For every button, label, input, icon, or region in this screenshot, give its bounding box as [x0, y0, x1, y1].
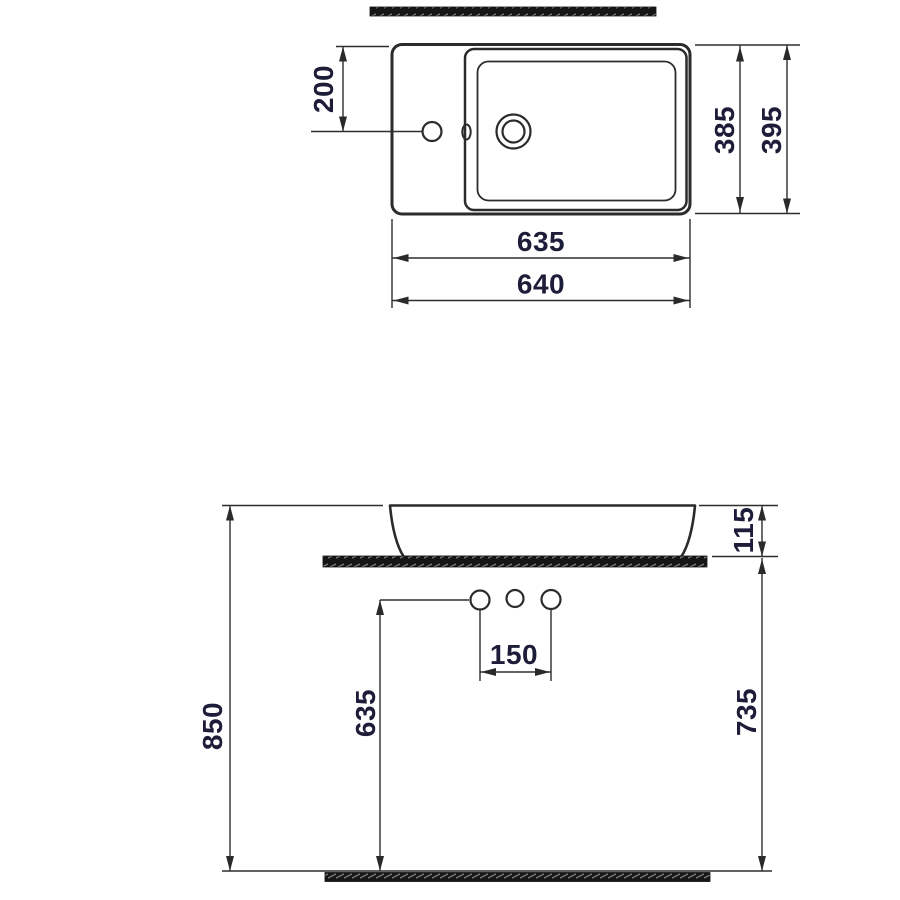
arrow-down-icon	[339, 117, 347, 132]
faucet-holes	[471, 590, 561, 610]
basin-outer-rect	[392, 45, 690, 215]
dim-depths: 385 395	[695, 45, 800, 214]
drawing-sheet: 200 385 395 635 640	[0, 0, 900, 900]
bowl-inner-rect	[478, 62, 676, 201]
arrow-right-icon	[674, 297, 689, 305]
hole-left	[471, 591, 490, 610]
floor-hatch-bar	[325, 873, 710, 882]
arrow-up-icon	[758, 506, 766, 521]
dim-widths: 635 640	[392, 219, 690, 308]
overflow-notch	[462, 125, 470, 140]
arrow-down-icon	[736, 197, 744, 212]
arrow-down-icon	[758, 542, 766, 557]
dim-label-150: 150	[490, 639, 538, 670]
dim-label-735: 735	[731, 688, 762, 736]
dim-basin-height: 115	[728, 506, 766, 557]
dim-label-395: 395	[756, 106, 787, 154]
arrow-up-icon	[339, 47, 347, 62]
dim-counter-height: 735	[731, 558, 766, 871]
faucet-hole	[423, 122, 442, 141]
dim-faucet-offset: 200	[308, 47, 422, 132]
arrow-left-icon	[394, 297, 409, 305]
hole-middle	[507, 590, 524, 607]
arrow-left-icon	[394, 254, 409, 262]
dim-label-115: 115	[728, 507, 759, 554]
plan-view: 200 385 395 635 640	[308, 7, 800, 308]
dim-label-200: 200	[308, 65, 339, 113]
arrow-down-icon	[376, 856, 384, 871]
arrow-right-icon	[674, 254, 689, 262]
dim-hole-spacing: 150	[480, 610, 551, 681]
counter-hatch-bar	[323, 556, 707, 567]
arrow-up-icon	[226, 506, 234, 521]
front-view: 850 635 735 115	[197, 506, 778, 882]
dim-label-640: 640	[517, 269, 565, 300]
dim-label-850: 850	[197, 702, 228, 750]
dim-hole-height: 635	[350, 600, 469, 871]
dim-label-385: 385	[709, 106, 740, 154]
dim-label-635-plan: 635	[517, 226, 565, 257]
arrow-down-icon	[783, 199, 791, 214]
basin-plan-outline	[392, 45, 690, 215]
arrow-up-icon	[783, 45, 791, 60]
arrow-down-icon	[226, 856, 234, 871]
technical-drawing: 200 385 395 635 640	[0, 0, 900, 900]
bowl-rim-rect	[465, 49, 687, 210]
basin-profile	[390, 506, 695, 558]
hole-right	[542, 590, 561, 609]
dim-label-635-elevation: 635	[350, 689, 381, 737]
drain-inner-circle	[503, 121, 525, 143]
arrow-up-icon	[758, 559, 766, 574]
dim-overall-height: 850	[197, 506, 234, 872]
arrow-up-icon	[736, 47, 744, 62]
wall-hatch-bar	[370, 7, 656, 16]
arrow-up-icon	[376, 600, 384, 615]
arrow-down-icon	[758, 856, 766, 871]
